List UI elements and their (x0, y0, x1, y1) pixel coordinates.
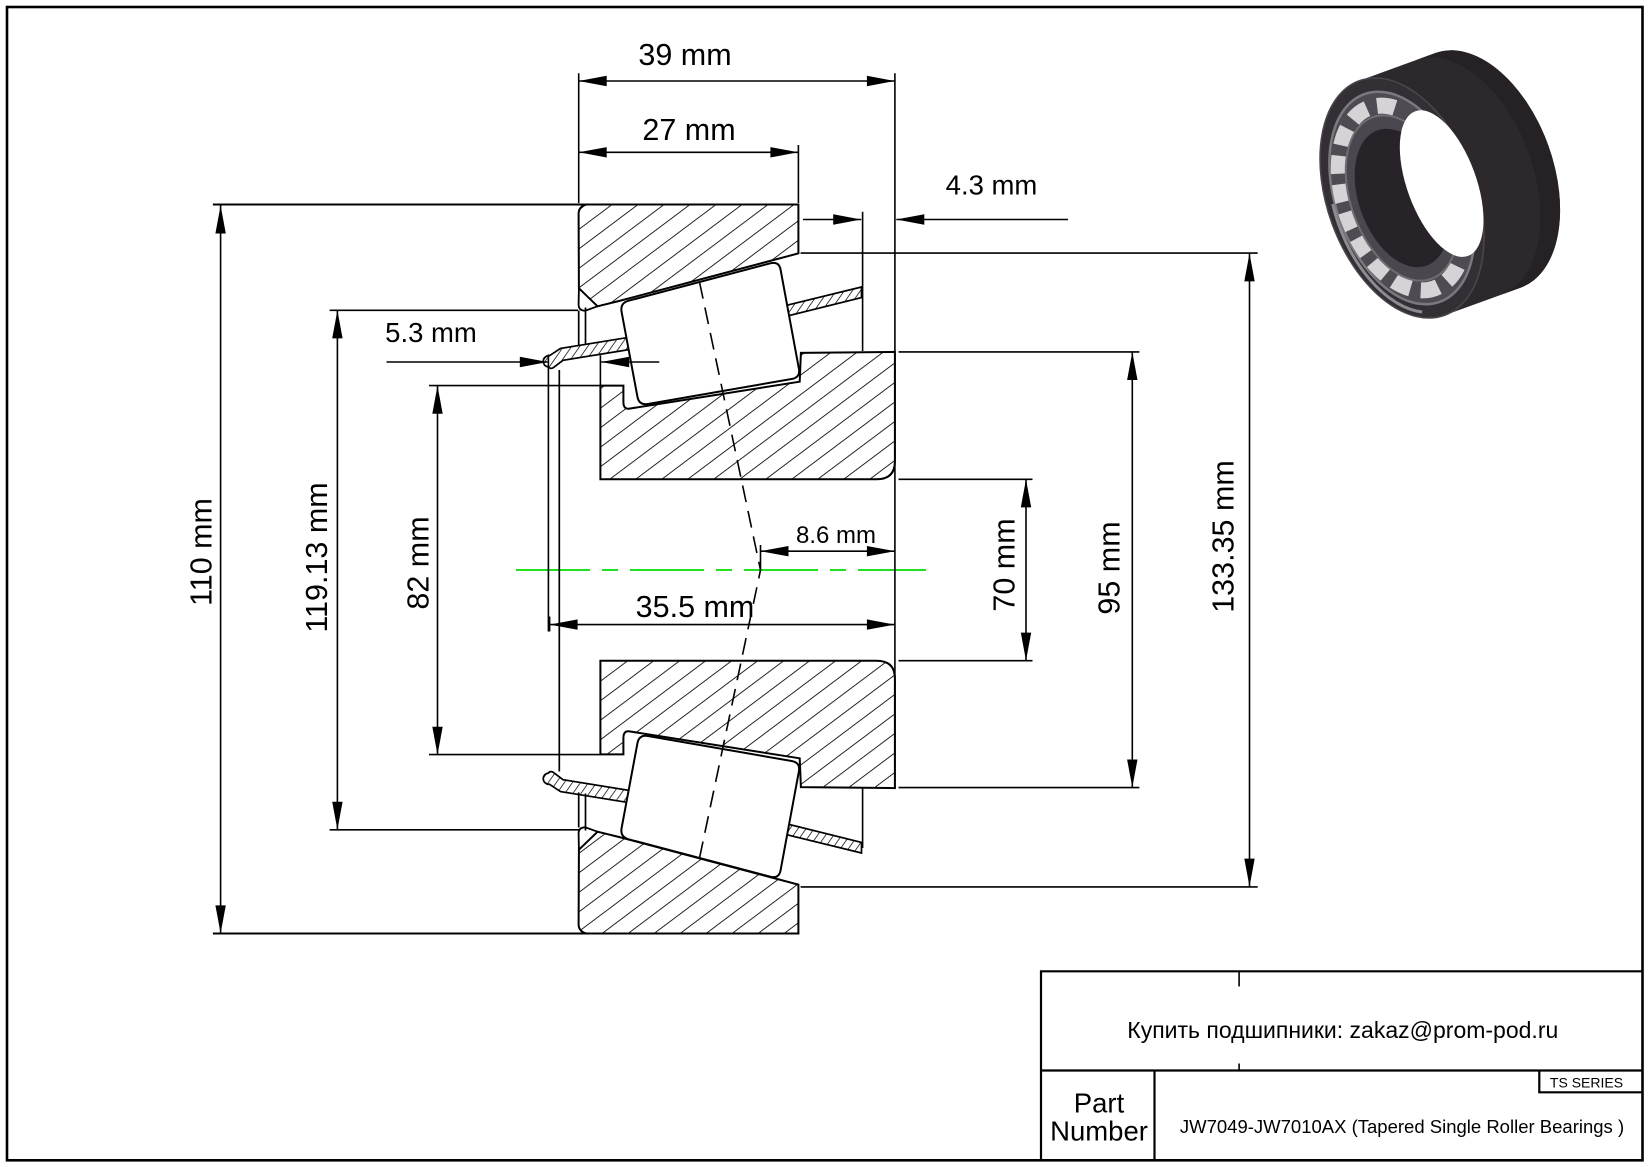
svg-text:5.3 mm: 5.3 mm (385, 317, 477, 348)
svg-text:Part: Part (1074, 1088, 1125, 1119)
svg-text:133.35 mm: 133.35 mm (1207, 460, 1241, 613)
svg-text:TS SERIES: TS SERIES (1550, 1075, 1623, 1091)
svg-text:119.13 mm: 119.13 mm (300, 482, 334, 632)
svg-text:39 mm: 39 mm (638, 38, 731, 72)
svg-text:95 mm: 95 mm (1093, 521, 1127, 614)
svg-text:82 mm: 82 mm (402, 516, 436, 609)
svg-text:8.6 mm: 8.6 mm (796, 522, 876, 549)
svg-text:35.5 mm: 35.5 mm (636, 590, 755, 624)
svg-text:27 mm: 27 mm (642, 113, 735, 147)
svg-text:110 mm: 110 mm (185, 498, 219, 606)
svg-text:70 mm: 70 mm (988, 518, 1022, 611)
svg-text:Купить подшипники: zakaz@prom-: Купить подшипники: zakaz@prom-pod.ru (1127, 1017, 1558, 1043)
svg-text:Number: Number (1050, 1116, 1148, 1147)
svg-text:JW7049-JW7010AX (Tapered Singl: JW7049-JW7010AX (Tapered Single Roller B… (1180, 1116, 1624, 1137)
svg-text:4.3 mm: 4.3 mm (946, 170, 1038, 201)
